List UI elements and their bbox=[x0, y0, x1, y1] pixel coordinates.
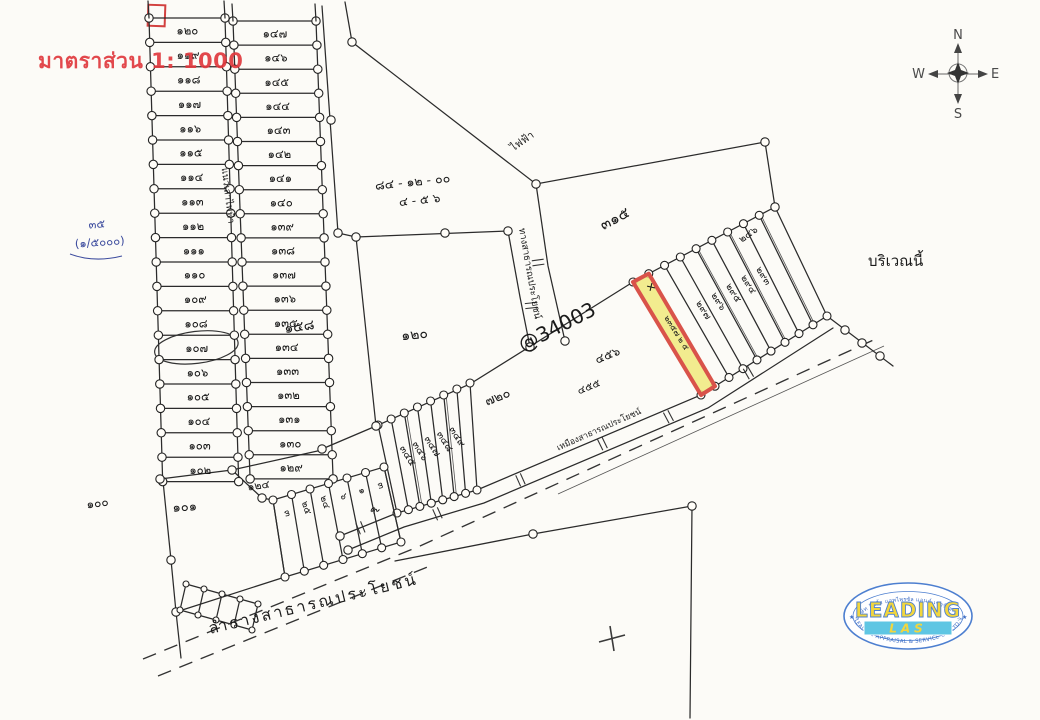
logo-sub-wordmark: LAS bbox=[889, 622, 927, 636]
parcel-number: ๑๓๑ bbox=[278, 412, 300, 426]
logo-star-left: ★ bbox=[849, 614, 854, 621]
parcel-number: ๑๔๑ bbox=[269, 171, 292, 185]
compass-north-label: N bbox=[953, 28, 963, 43]
power-line-note: ไฟฟ้า bbox=[507, 128, 537, 154]
area-note-line2: ๔ - ๕ ๖ bbox=[398, 191, 441, 209]
scanned-cadastral-map: ๑๒๐๑๑๙๑๑๘๑๑๗๑๑๖๑๑๕๑๑๔๑๑๓๑๑๒๑๑๑๑๑๐๑๐๙๑๐๘๑… bbox=[0, 0, 1040, 720]
parcel-number: ๑๔๔ bbox=[265, 99, 290, 113]
scale-label: มาตราส่วน 1: 1000 bbox=[38, 49, 243, 73]
parcel-number-101: ๑๐๑ bbox=[172, 499, 197, 516]
region-note: บริเวณนี้ bbox=[868, 250, 924, 270]
parcel-number: ๑๑๑ bbox=[183, 243, 205, 257]
margin-note-underline bbox=[70, 254, 122, 259]
parcel-number: ๑๑๖ bbox=[179, 121, 201, 135]
strip-number-9: ๙ bbox=[368, 501, 383, 518]
parcel-number: ๑๐๖ bbox=[187, 365, 209, 379]
parcel-number: ๑๐๘ bbox=[184, 317, 207, 331]
parcel-number: ๑๐๙ bbox=[184, 292, 207, 306]
parcel-number: ๑๔๖ bbox=[264, 51, 287, 65]
survey-node-circles bbox=[156, 38, 884, 616]
parcel-number-far-left: ๑๐๐ bbox=[85, 495, 109, 512]
compass-rose: N S W E bbox=[912, 28, 999, 122]
strip-parcel-number: ๒๙๔ bbox=[738, 273, 758, 296]
margin-note-line1: ๓๕ bbox=[88, 216, 106, 231]
compass-south-label: S bbox=[954, 107, 962, 122]
public-ditch-label: เหมืองสาธารณประโยชน์ bbox=[555, 406, 643, 453]
parcel-number: ๑๐๗ bbox=[185, 341, 208, 355]
map-canvas: ๑๒๐๑๑๙๑๑๘๑๑๗๑๑๖๑๑๕๑๑๔๑๑๓๑๑๒๑๑๑๑๑๐๑๐๙๑๐๘๑… bbox=[0, 0, 1040, 720]
logo-star-right: ★ bbox=[962, 614, 967, 621]
parcel-number: ๑๔๕ bbox=[264, 75, 289, 89]
area-note-line1: ๘๔ - ๑๒ - ๐๐ bbox=[374, 170, 451, 193]
strip-parcel-number: ๒๔ bbox=[317, 494, 332, 510]
parcel-number: ๑๓๐ bbox=[279, 436, 301, 450]
compass-star bbox=[947, 62, 969, 84]
survey-cross-mark bbox=[599, 626, 625, 651]
parcel-number: ๑๑๕ bbox=[179, 146, 203, 160]
strip-parcel-number: ๖ bbox=[337, 492, 349, 501]
parcel-number: ๑๑๐ bbox=[184, 268, 206, 282]
margin-note-line2: (๑/๕๐๐๐) bbox=[74, 233, 125, 250]
strip-parcel-number: ๒๕ bbox=[299, 500, 314, 516]
parcel-number: ๑๑๒ bbox=[182, 219, 204, 233]
parcel-number: ๑๑๓ bbox=[181, 195, 204, 209]
parcel-number-124: ๑๒๔ bbox=[246, 478, 270, 494]
parcel-ladder-columns: ๑๒๐๑๑๙๑๑๘๑๑๗๑๑๖๑๑๕๑๑๔๑๑๓๑๑๒๑๑๑๑๑๐๑๐๙๑๐๘๑… bbox=[145, 1, 337, 486]
parcel-number-120: ๑๒๐ bbox=[400, 326, 428, 345]
parcel-number: ๑๐๕ bbox=[187, 390, 210, 404]
strip-parcel-number: ๓ bbox=[281, 509, 294, 519]
parcel-number: ๑๐๓ bbox=[189, 439, 211, 453]
compass-west-label: W bbox=[912, 67, 925, 82]
parcel-number-center: ๗๒๐ bbox=[483, 386, 513, 410]
parcel-number: ๑๓๓ bbox=[276, 364, 299, 378]
parcel-number: ๑๔๐ bbox=[270, 195, 293, 209]
survey-number-456: ๔๕๖ bbox=[593, 344, 622, 367]
parcel-number: ๑๒๙ bbox=[279, 460, 302, 474]
parcel-number: ๑๔๓ bbox=[267, 123, 291, 137]
strip-parcel-number: ๒๙๕ bbox=[723, 282, 743, 305]
public-road-label: ทางสาธารณประโยชน์ bbox=[516, 227, 544, 320]
strip-parcel-number: ๑ bbox=[356, 487, 368, 496]
parcel-number: ๑๓๙ bbox=[270, 219, 294, 233]
parcel-number: ๑๐๒ bbox=[189, 463, 211, 477]
parcel-number: ๑๑๔ bbox=[180, 170, 204, 184]
compass-east-label: E bbox=[991, 67, 999, 82]
parcel-number: ๑๑๗ bbox=[178, 97, 201, 111]
strip-parcel-fans: ๓๔๕๓๔๖๓๔๗๓๔๘๓๔๙๓๒๕๒๔๖๑๓๒๙๗๒๙๖๒๙๕๒๙๔๒๙๓๒๓… bbox=[269, 203, 831, 581]
logo-wordmark: LEADING bbox=[855, 598, 961, 622]
parcel-number: ๑๐๔ bbox=[187, 414, 210, 428]
parcel-number: ๑๓๖ bbox=[274, 292, 296, 306]
survey-tick-marks bbox=[356, 259, 754, 534]
company-logo-stamp: บริษัท ลีดดิ้ง แอพไพรซัล แอนด์ เซอร์วิส … bbox=[844, 583, 972, 649]
parcel-number: ๑๒๐ bbox=[176, 24, 198, 38]
lane-label: แนวเสาไฟฟ้า bbox=[219, 167, 238, 224]
parcel-number: ๑๓๘ bbox=[271, 243, 295, 257]
parcel-number: ๑๔๒ bbox=[268, 147, 292, 161]
strip-parcel-number: ๒๙๓ bbox=[753, 265, 773, 288]
parcel-number: ๑๓๔ bbox=[275, 340, 299, 354]
parcel-number-top-right: ๓๑๕ bbox=[597, 203, 633, 234]
survey-number-246: ๒๔๖ bbox=[737, 225, 760, 246]
survey-number-455: ๔๕๕ bbox=[576, 377, 603, 397]
strip-parcel-number: ๓ bbox=[375, 481, 388, 491]
strip-parcel-number: ๒๙๗ bbox=[693, 299, 713, 322]
parcel-number: ๑๓๗ bbox=[272, 268, 296, 282]
parcel-number: ๑๔๗ bbox=[263, 27, 288, 41]
strip-parcel-number: ๒๙๖ bbox=[708, 291, 728, 313]
parcel-number: ๑๓๒ bbox=[277, 388, 300, 402]
parcel-number: ๑๑๘ bbox=[177, 73, 201, 87]
